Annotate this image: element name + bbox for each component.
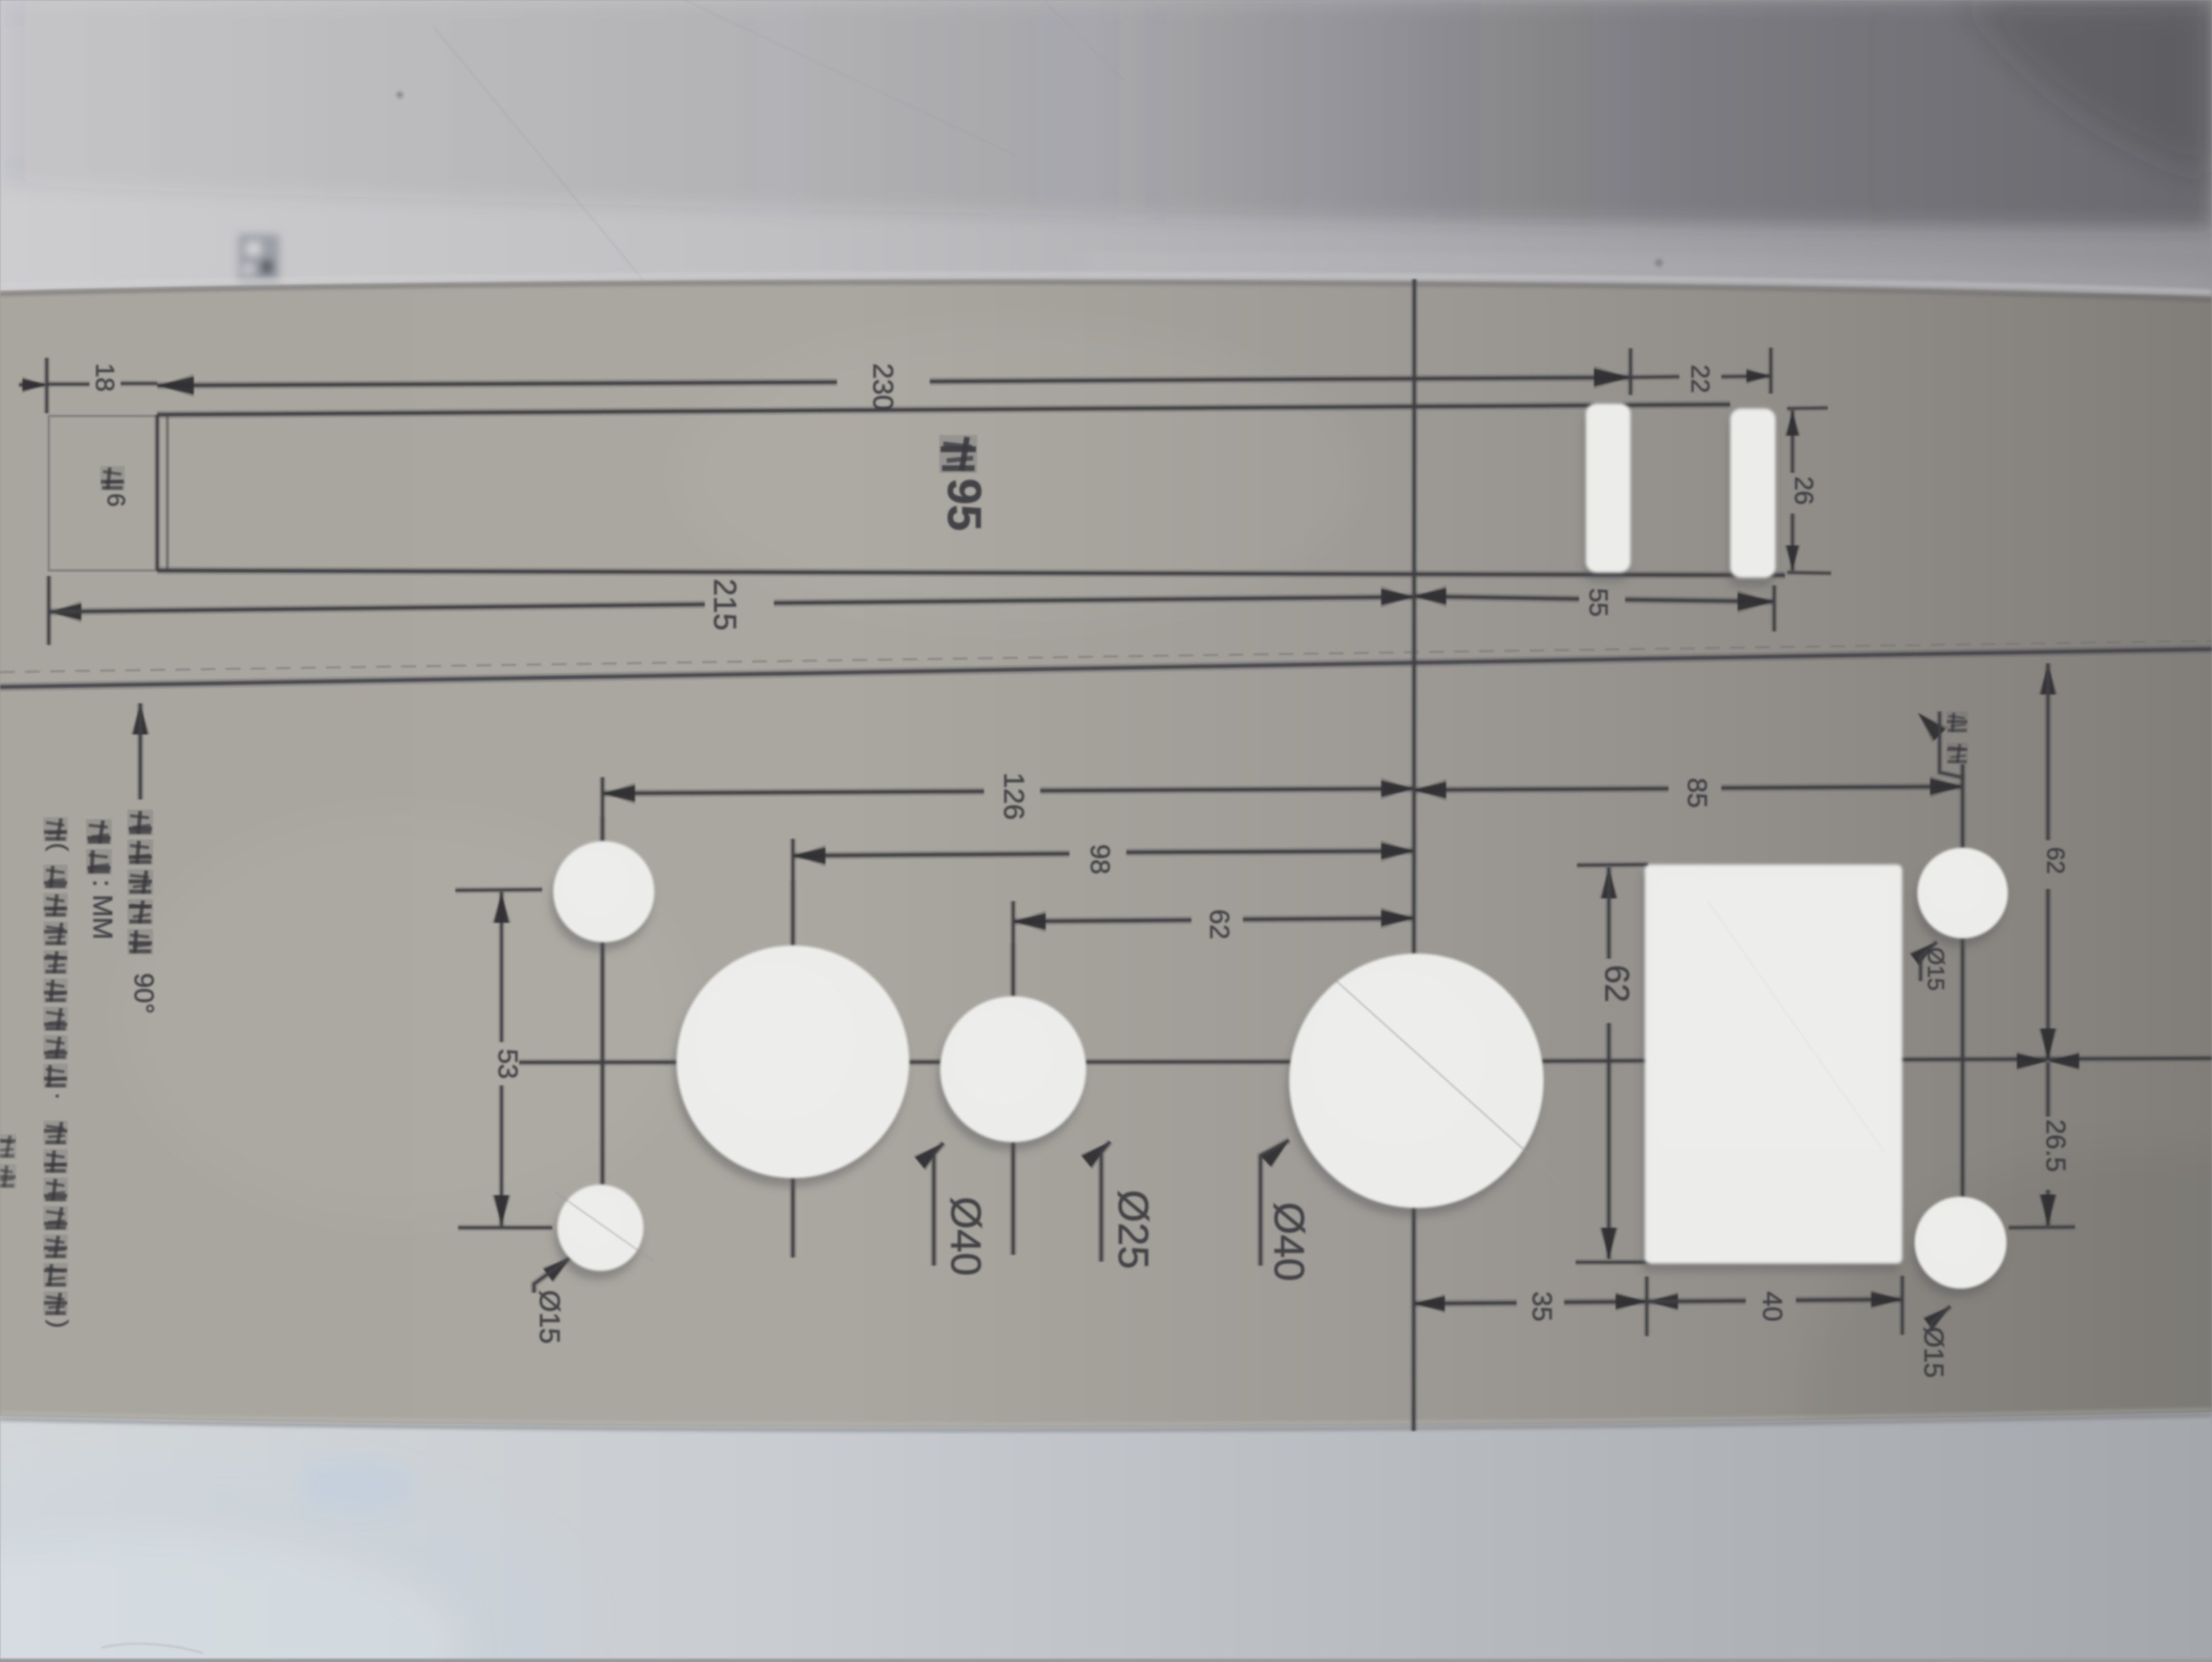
svg-text:Ø15: Ø15 bbox=[534, 1290, 566, 1344]
svg-text:85: 85 bbox=[1682, 778, 1712, 808]
svg-text:(: ( bbox=[45, 843, 73, 851]
svg-text:53: 53 bbox=[493, 1049, 523, 1079]
svg-text:230: 230 bbox=[867, 363, 899, 411]
svg-text:18: 18 bbox=[90, 363, 119, 392]
svg-text:95: 95 bbox=[938, 478, 991, 531]
svg-text:Ø40: Ø40 bbox=[942, 1197, 989, 1276]
svg-text:55: 55 bbox=[1584, 588, 1612, 617]
svg-text:: MM: : MM bbox=[87, 879, 117, 940]
svg-text:6: 6 bbox=[102, 493, 130, 507]
svg-text:Ø15: Ø15 bbox=[1923, 947, 1948, 991]
svg-text:Ø40: Ø40 bbox=[1265, 1202, 1312, 1281]
svg-text:Ø25: Ø25 bbox=[1109, 1190, 1156, 1269]
svg-text:126: 126 bbox=[998, 772, 1030, 820]
svg-text:62: 62 bbox=[2042, 847, 2070, 874]
svg-text:·: · bbox=[45, 1092, 71, 1100]
svg-text:98: 98 bbox=[1085, 844, 1115, 875]
svg-text:22: 22 bbox=[1685, 365, 1714, 393]
svg-text:62: 62 bbox=[1204, 909, 1234, 940]
svg-text:Ø15: Ø15 bbox=[1919, 1327, 1948, 1378]
svg-text:90°: 90° bbox=[129, 973, 159, 1014]
svg-text:): ) bbox=[45, 1320, 73, 1328]
svg-text:26: 26 bbox=[1789, 476, 1818, 505]
svg-text:35: 35 bbox=[1527, 1291, 1557, 1322]
svg-text:215: 215 bbox=[708, 579, 743, 631]
svg-text:26.5: 26.5 bbox=[2041, 1119, 2070, 1172]
svg-text:40: 40 bbox=[1757, 1291, 1787, 1322]
svg-text:62: 62 bbox=[1598, 965, 1636, 1003]
